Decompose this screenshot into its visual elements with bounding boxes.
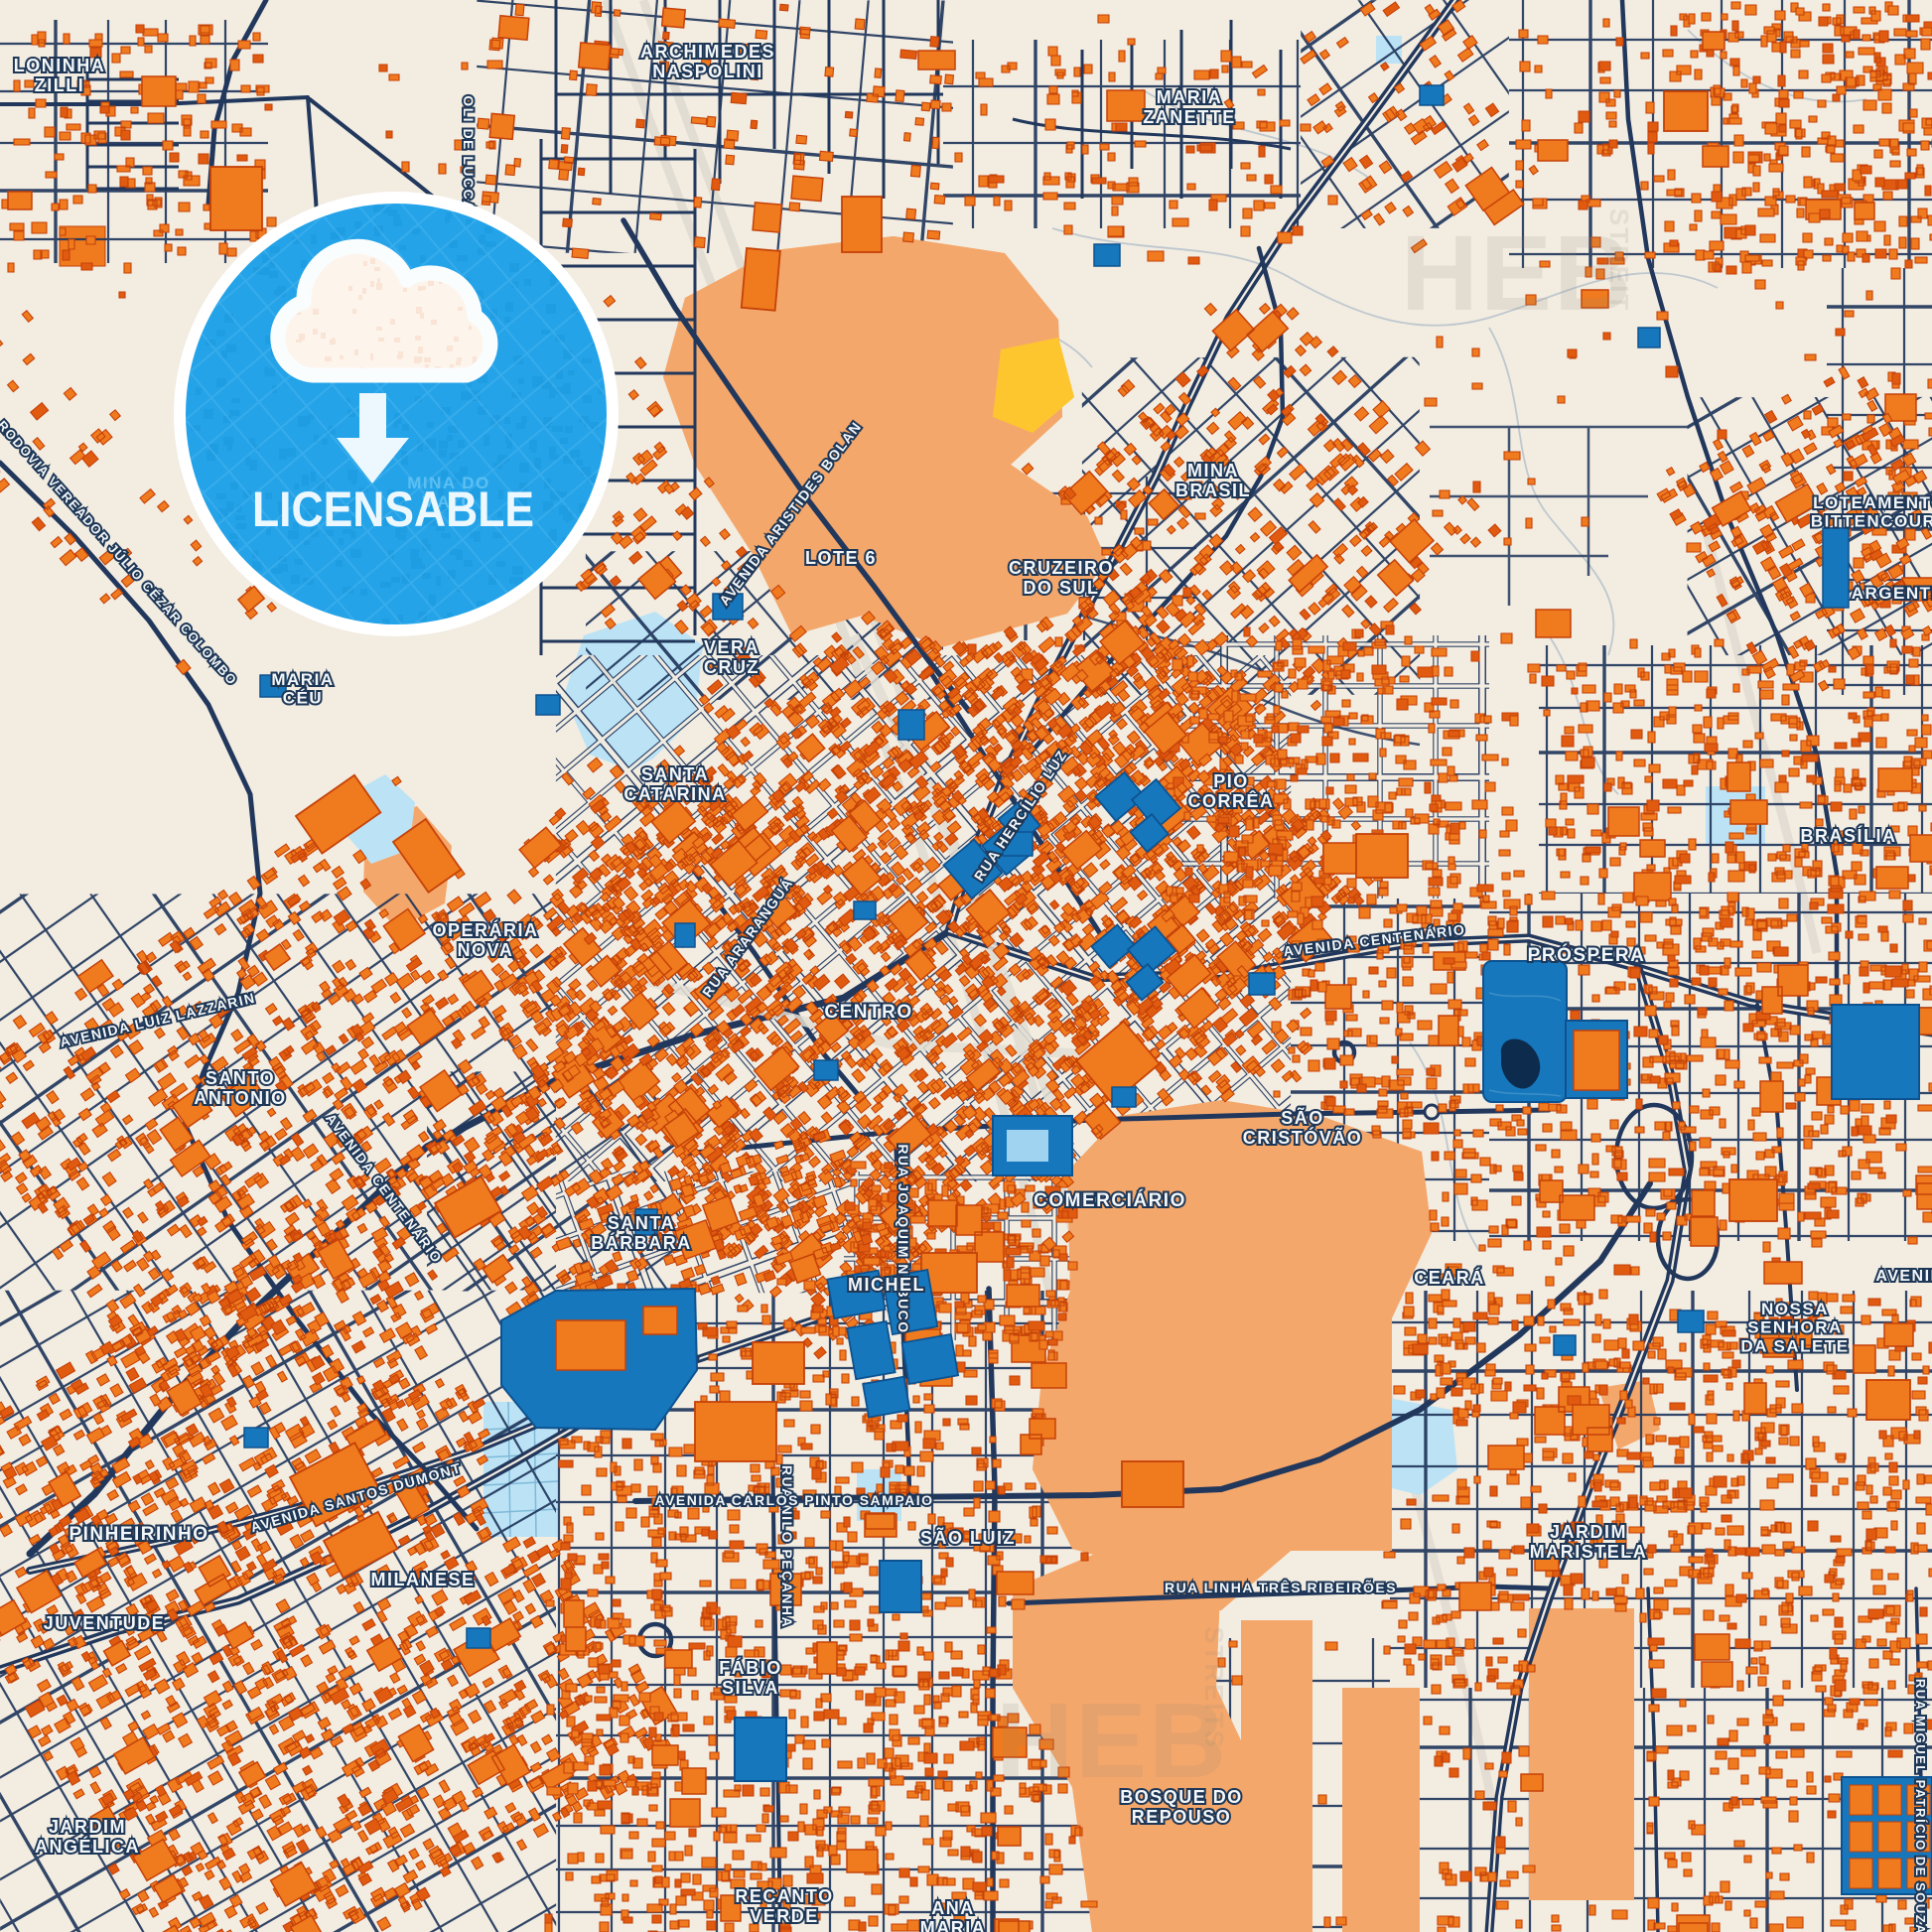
svg-text:BOSQUE DOREPOUSO: BOSQUE DOREPOUSO <box>1120 1787 1243 1827</box>
svg-text:RUA LINHA TRÊS RIBEIRÕES: RUA LINHA TRÊS RIBEIRÕES <box>1165 1579 1397 1595</box>
svg-text:ARCHIMEDESNASPOLINI: ARCHIMEDESNASPOLINI <box>640 42 775 81</box>
svg-text:FÁBIOSILVA: FÁBIOSILVA <box>719 1657 782 1698</box>
svg-text:PRÓSPERA: PRÓSPERA <box>1528 944 1646 966</box>
svg-text:LICENSABLE: LICENSABLE <box>252 482 534 537</box>
svg-text:LOTE 6: LOTE 6 <box>805 548 877 568</box>
svg-text:HEB: HEB <box>1401 212 1633 333</box>
svg-text:RECANTOVERDE: RECANTOVERDE <box>735 1886 833 1926</box>
svg-text:RUA JOAQUIM NABUCO: RUA JOAQUIM NABUCO <box>896 1144 911 1333</box>
svg-text:MICHEL: MICHEL <box>848 1275 925 1295</box>
svg-text:STREITS: STREITS <box>1199 1626 1229 1749</box>
svg-text:COMERCIÁRIO: COMERCIÁRIO <box>1034 1189 1186 1211</box>
svg-text:MILANESE: MILANESE <box>370 1570 475 1589</box>
svg-text:ARGENTINA: ARGENTINA <box>1852 584 1932 603</box>
svg-text:VERACRUZ: VERACRUZ <box>704 637 759 677</box>
svg-text:JUVENTUDE: JUVENTUDE <box>44 1613 166 1633</box>
svg-text:CRUZEIRODO SUL: CRUZEIRODO SUL <box>1009 558 1114 598</box>
svg-text:STREIT: STREIT <box>1604 208 1634 312</box>
svg-text:MARIAZANETTE: MARIAZANETTE <box>1143 87 1236 127</box>
svg-text:OLI DE LUCCA: OLI DE LUCCA <box>461 95 477 212</box>
svg-text:RUA MIGUEL PATRÍCIO DE SOUZA: RUA MIGUEL PATRÍCIO DE SOUZA <box>1913 1679 1928 1932</box>
svg-text:RUA NILO PEÇANHA: RUA NILO PEÇANHA <box>779 1465 795 1628</box>
svg-text:PINHEIRINHO: PINHEIRINHO <box>69 1524 208 1545</box>
svg-text:SANTOANTONIO: SANTOANTONIO <box>194 1068 286 1108</box>
svg-text:BRASÍLIA: BRASÍLIA <box>1801 825 1897 846</box>
svg-text:CENTRO: CENTRO <box>824 1002 912 1023</box>
svg-text:CEARÁ: CEARÁ <box>1414 1267 1485 1288</box>
svg-text:SÃO LUIZ: SÃO LUIZ <box>920 1527 1016 1548</box>
svg-text:AVENIDA CARLOS PINTO SAMPAIO: AVENIDA CARLOS PINTO SAMPAIO <box>654 1492 933 1508</box>
svg-text:LOTEAMENTOBITTENCOURT: LOTEAMENTOBITTENCOURT <box>1811 493 1932 531</box>
svg-text:JARDIMANGÉLICA: JARDIMANGÉLICA <box>35 1817 140 1857</box>
svg-text:AVENIDA: AVENIDA <box>1875 1268 1932 1285</box>
svg-text:HEB: HEB <box>996 1680 1228 1800</box>
